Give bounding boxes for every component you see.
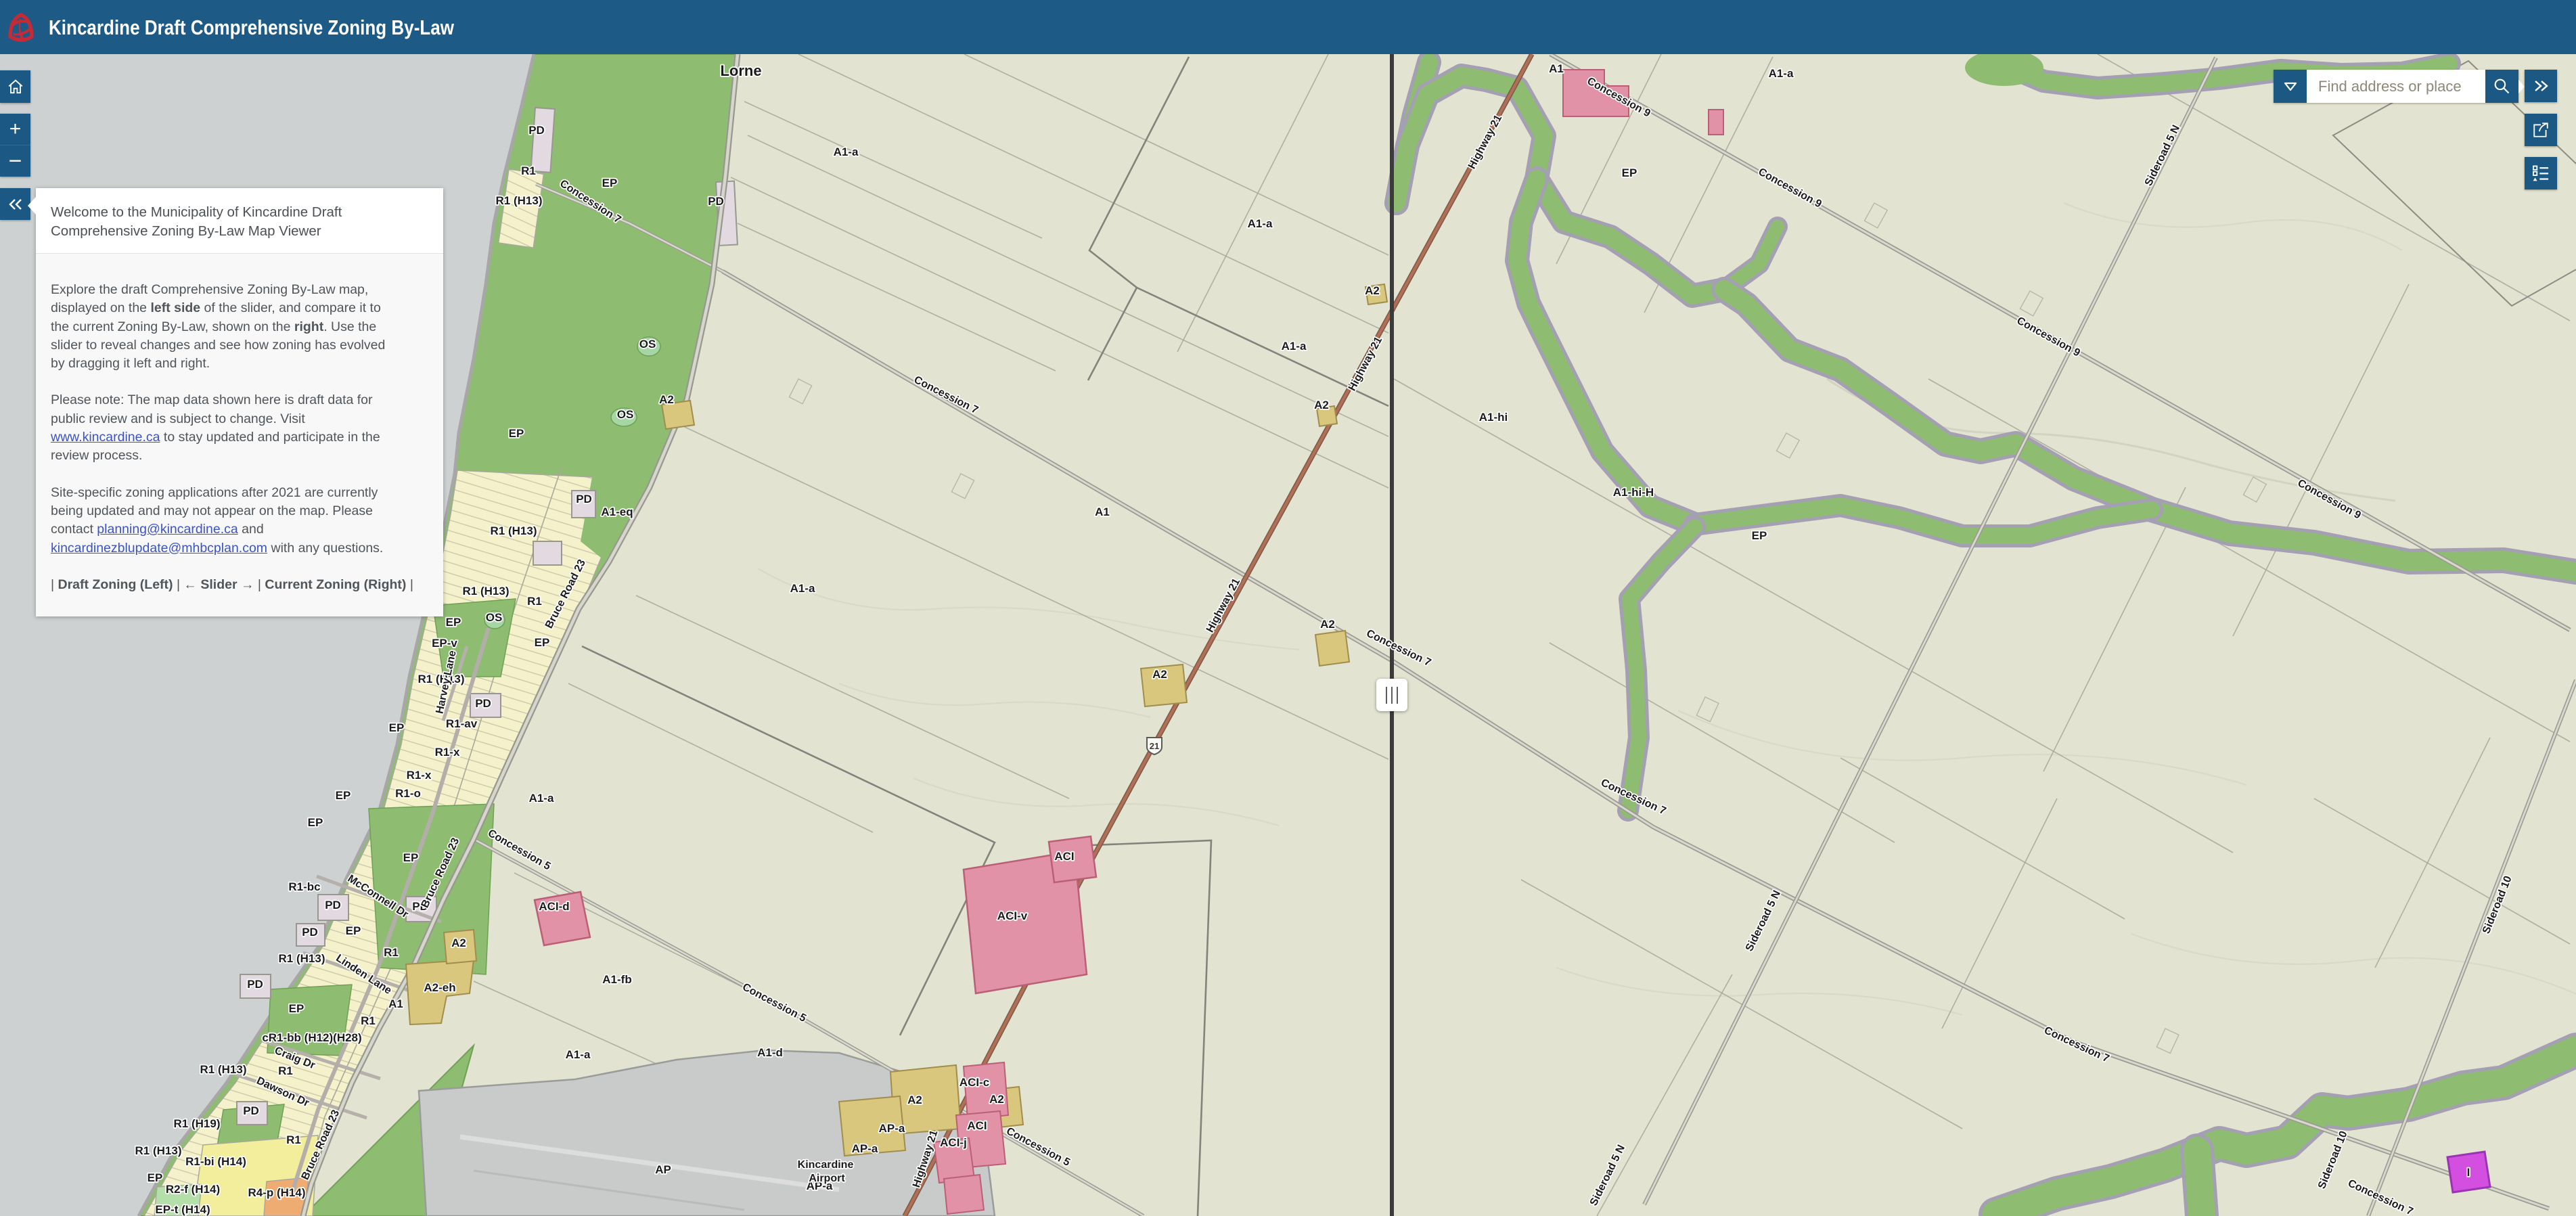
svg-text:A1-d: A1-d bbox=[757, 1046, 783, 1059]
svg-text:A1-hi: A1-hi bbox=[1479, 411, 1508, 424]
svg-text:EP: EP bbox=[1622, 166, 1637, 179]
svg-text:A2: A2 bbox=[1365, 284, 1380, 297]
svg-text:R1: R1 bbox=[384, 946, 399, 959]
svg-text:R1: R1 bbox=[278, 1064, 293, 1077]
svg-text:AP-a: AP-a bbox=[879, 1122, 905, 1135]
svg-text:PD: PD bbox=[247, 978, 263, 991]
svg-text:ACI-d: ACI-d bbox=[539, 900, 569, 913]
svg-text:PD: PD bbox=[576, 493, 592, 505]
svg-text:PD: PD bbox=[325, 899, 341, 911]
svg-text:PD: PD bbox=[243, 1104, 259, 1117]
svg-text:R1: R1 bbox=[521, 164, 536, 177]
svg-text:R1 (H13): R1 (H13) bbox=[200, 1063, 247, 1076]
svg-text:A2-eh: A2-eh bbox=[424, 981, 455, 994]
svg-text:EP: EP bbox=[389, 721, 405, 734]
svg-text:A1: A1 bbox=[388, 997, 403, 1010]
svg-text:OS: OS bbox=[617, 408, 634, 421]
svg-text:ACI-j: ACI-j bbox=[940, 1136, 967, 1149]
svg-text:EP: EP bbox=[308, 816, 323, 829]
svg-text:EP: EP bbox=[289, 1002, 304, 1015]
svg-text:R1-x: R1-x bbox=[435, 746, 460, 759]
svg-text:A2: A2 bbox=[989, 1093, 1004, 1106]
svg-text:ACI-c: ACI-c bbox=[959, 1076, 989, 1089]
svg-text:EP: EP bbox=[403, 851, 419, 864]
svg-text:cR1-bb (H12)(H28): cR1-bb (H12)(H28) bbox=[262, 1031, 361, 1044]
svg-text:A1-a: A1-a bbox=[1769, 67, 1794, 80]
svg-text:R1-x: R1-x bbox=[407, 769, 432, 782]
svg-text:EP: EP bbox=[346, 924, 361, 937]
svg-text:EP: EP bbox=[148, 1171, 163, 1184]
svg-text:OS: OS bbox=[639, 338, 656, 351]
svg-text:R1: R1 bbox=[361, 1014, 376, 1027]
svg-text:A2: A2 bbox=[659, 393, 674, 406]
svg-text:R1: R1 bbox=[286, 1133, 301, 1146]
svg-text:EP: EP bbox=[336, 789, 351, 802]
svg-text:R1-av: R1-av bbox=[446, 717, 478, 730]
svg-text:R1 (H13): R1 (H13) bbox=[496, 194, 543, 207]
svg-text:R4-p (H14): R4-p (H14) bbox=[248, 1186, 305, 1199]
svg-text:A1-a: A1-a bbox=[566, 1048, 591, 1061]
svg-text:R1 (H19): R1 (H19) bbox=[174, 1117, 221, 1130]
svg-text:A2: A2 bbox=[1152, 668, 1167, 681]
svg-text:R1-bc: R1-bc bbox=[288, 880, 320, 893]
svg-text:OS: OS bbox=[486, 611, 503, 624]
svg-text:R1 (H13): R1 (H13) bbox=[463, 585, 510, 598]
svg-text:R2-f (H14): R2-f (H14) bbox=[166, 1183, 220, 1196]
svg-text:R1 (H13): R1 (H13) bbox=[135, 1144, 182, 1157]
svg-text:R1-o: R1-o bbox=[395, 787, 421, 800]
svg-text:ACI: ACI bbox=[1054, 850, 1074, 863]
svg-text:R1: R1 bbox=[527, 595, 542, 608]
svg-text:AP-a: AP-a bbox=[852, 1142, 878, 1155]
svg-text:A2: A2 bbox=[907, 1094, 922, 1106]
svg-text:PD: PD bbox=[475, 697, 491, 710]
svg-text:R1-bi (H14): R1-bi (H14) bbox=[185, 1155, 246, 1168]
svg-text:A1-eq: A1-eq bbox=[601, 505, 633, 518]
svg-text:A1-a: A1-a bbox=[529, 792, 554, 805]
svg-text:21: 21 bbox=[1150, 741, 1159, 751]
svg-text:A1-fb: A1-fb bbox=[602, 973, 631, 986]
svg-text:Lorne: Lorne bbox=[720, 62, 761, 79]
svg-text:R1 (H13): R1 (H13) bbox=[491, 524, 537, 537]
svg-text:EP: EP bbox=[535, 636, 550, 649]
svg-text:AP: AP bbox=[655, 1163, 671, 1176]
svg-text:EP: EP bbox=[446, 616, 461, 629]
svg-text:R1 (H13): R1 (H13) bbox=[279, 952, 325, 965]
svg-text:PD: PD bbox=[302, 926, 318, 939]
svg-text:A2: A2 bbox=[451, 937, 466, 949]
svg-text:ACI-v: ACI-v bbox=[997, 909, 1028, 922]
svg-text:A1-a: A1-a bbox=[790, 582, 815, 595]
svg-text:A1: A1 bbox=[1549, 62, 1564, 75]
svg-text:ACI: ACI bbox=[967, 1119, 987, 1132]
svg-text:EP: EP bbox=[509, 427, 524, 440]
svg-text:PD: PD bbox=[708, 195, 724, 208]
svg-text:Airport: Airport bbox=[809, 1173, 845, 1184]
svg-text:A2: A2 bbox=[1320, 618, 1335, 631]
svg-text:A2: A2 bbox=[1314, 399, 1329, 411]
svg-text:A1-hi-H: A1-hi-H bbox=[1613, 486, 1654, 499]
svg-text:EP: EP bbox=[1752, 529, 1767, 542]
svg-text:A1-a: A1-a bbox=[1248, 217, 1273, 230]
svg-text:I: I bbox=[2467, 1166, 2470, 1179]
svg-text:A1-a: A1-a bbox=[1282, 340, 1307, 353]
svg-text:Kincardine: Kincardine bbox=[798, 1159, 854, 1171]
svg-text:EP-v: EP-v bbox=[432, 637, 457, 650]
svg-text:PD: PD bbox=[528, 124, 545, 137]
svg-text:EP-t (H14): EP-t (H14) bbox=[155, 1203, 210, 1216]
svg-text:EP: EP bbox=[602, 177, 618, 189]
svg-text:A1: A1 bbox=[1095, 505, 1110, 518]
svg-text:A1-a: A1-a bbox=[834, 145, 859, 158]
